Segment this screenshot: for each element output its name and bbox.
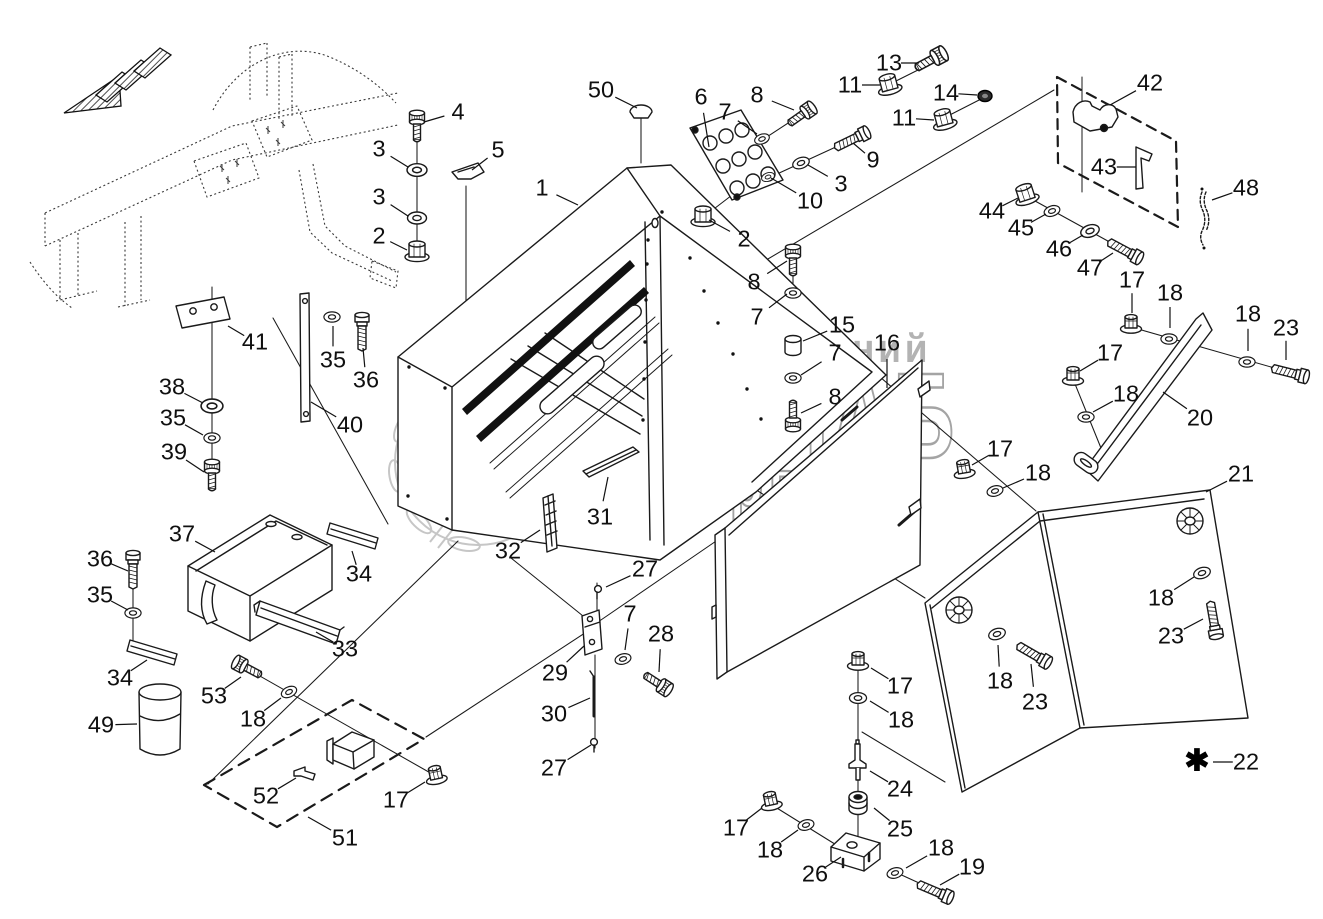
leader-line-50: [615, 97, 637, 108]
rubber-cap: [630, 105, 652, 118]
leader-line-27: [606, 576, 631, 587]
leader-line-17: [746, 808, 762, 820]
leader-line-52: [278, 778, 296, 789]
diagram-artwork: группа компаний АГРОСНАБ техсервис: [0, 0, 1323, 919]
clip-52: [294, 767, 315, 780]
leader-line-18: [264, 698, 281, 711]
leader-line-35: [185, 425, 203, 435]
l-pin-43: [1136, 147, 1152, 189]
leader-line-2: [390, 242, 407, 250]
rubber-grommet-25: [849, 792, 867, 815]
holddown-strip-lower: [127, 640, 177, 665]
leader-line-34: [352, 551, 356, 565]
exploded-parts-diagram: группа компаний АГРОСНАБ техсервис: [0, 0, 1323, 919]
clip-latch: [452, 163, 484, 179]
leader-line-36: [363, 348, 365, 367]
clamp-43: [1073, 101, 1118, 131]
leader-line-20: [1163, 392, 1187, 409]
holddown-strip-upper: [327, 523, 378, 549]
hinge-rod: [590, 671, 594, 716]
leader-line-27: [568, 745, 591, 760]
angle-bracket-26: [831, 833, 880, 871]
leader-line-48: [1212, 193, 1232, 200]
leader-line-37: [195, 541, 215, 552]
leader-line-28: [659, 649, 660, 672]
leader-line-38: [184, 393, 203, 403]
leader-line-42: [1110, 91, 1136, 105]
support-bracket: [1071, 313, 1212, 481]
leader-line-18: [1093, 401, 1113, 412]
leader-line-17: [408, 782, 425, 793]
leader-line-40: [311, 402, 336, 417]
hinge-plate: [582, 610, 602, 655]
leader-line-49: [115, 724, 137, 725]
hinge-screw-top: [595, 586, 602, 599]
tractor-frame-outline: [30, 43, 398, 308]
leader-line-36: [111, 564, 128, 571]
leader-line-25: [874, 808, 890, 821]
leader-line-34: [131, 660, 147, 671]
leader-line-45: [1031, 214, 1046, 222]
leader-line-29: [567, 646, 584, 662]
leader-line-17: [871, 668, 888, 679]
leader-line-24: [870, 771, 888, 782]
mounting-plate: [176, 297, 230, 328]
spacer-bushing-15: [785, 336, 801, 356]
leader-line-18: [781, 830, 798, 842]
grease-can: [139, 684, 181, 755]
footnote-asterisk: ✱: [1184, 744, 1209, 779]
leader-line-19: [940, 874, 959, 885]
kit-boundary-dashed: [204, 700, 424, 827]
leader-line-4: [424, 116, 444, 122]
clamp-kit-dashed: [1057, 77, 1178, 227]
leader-line-1: [556, 195, 578, 205]
leader-line-21: [1206, 481, 1227, 492]
leader-line-46: [1069, 235, 1083, 243]
leader-line-8: [772, 101, 794, 110]
flat-strip: [300, 293, 310, 422]
leader-line-39: [186, 460, 204, 472]
leader-line-14: [958, 94, 977, 95]
direction-arrow-icon: [64, 48, 171, 113]
leader-line-51: [308, 817, 331, 830]
leader-line-41: [228, 326, 244, 336]
leader-line-3: [391, 156, 408, 167]
hinge-screw-bottom: [591, 739, 598, 752]
leader-line-35: [111, 601, 128, 610]
leader-line-17: [1080, 360, 1098, 371]
perforated-plate: [690, 110, 783, 200]
leader-line-30: [568, 698, 590, 708]
leader-line-53: [225, 677, 241, 688]
leader-line-7: [625, 628, 628, 650]
leader-line-18: [870, 701, 889, 712]
leader-line-3: [391, 205, 408, 216]
spring-pin-48: [1200, 188, 1209, 250]
pivot-pin-24: [849, 740, 866, 780]
leader-line-18: [1003, 479, 1024, 488]
leader-line-9: [853, 143, 865, 153]
leader-line-47: [1099, 253, 1113, 262]
relay-block: [327, 732, 374, 769]
leader-line-18: [906, 856, 927, 868]
leader-line-11: [916, 119, 934, 120]
leader-line-3: [808, 165, 828, 176]
